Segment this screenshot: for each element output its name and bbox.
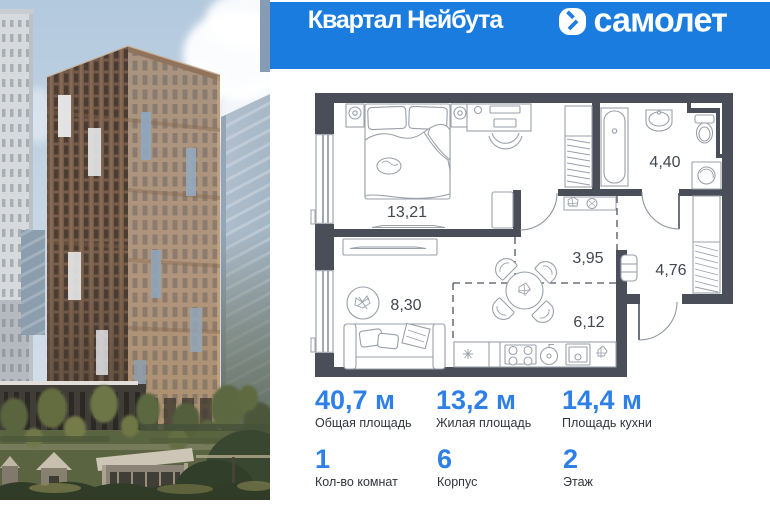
svg-text:6,12: 6,12 — [573, 314, 604, 331]
svg-text:4,76: 4,76 — [655, 262, 686, 279]
svg-text:3,95: 3,95 — [572, 250, 603, 267]
svg-text:4,40: 4,40 — [649, 154, 680, 171]
svg-text:8,30: 8,30 — [390, 297, 421, 314]
svg-text:самолет: самолет — [594, 5, 728, 38]
svg-text:13,21: 13,21 — [387, 204, 427, 221]
